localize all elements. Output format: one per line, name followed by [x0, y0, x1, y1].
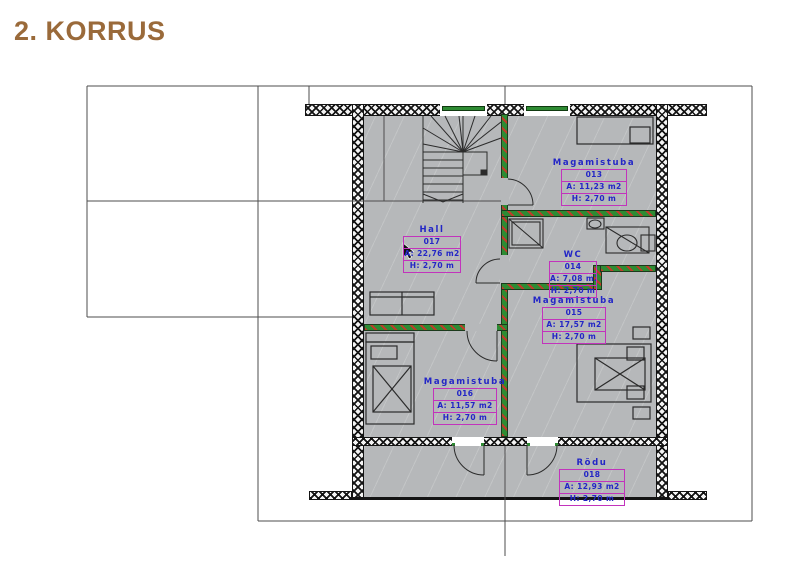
room-label-magamistuba-016: Magamistuba 016 A: 11,57 m2 H: 2,70 m — [410, 377, 520, 425]
room-label-magamistuba-013: Magamistuba 013 A: 11,23 m2 H: 2,70 m — [539, 158, 649, 206]
room-name: WC — [518, 250, 628, 260]
balcony-door-opening-right — [527, 437, 558, 446]
room-height: H: 2,70 m — [542, 331, 606, 344]
interior-wall-013-wc — [501, 210, 656, 217]
wall-stub-right — [668, 491, 707, 500]
page-title: 2. KORRUS — [14, 16, 166, 47]
window-glass-2 — [526, 106, 568, 111]
room-name: Hall — [377, 225, 487, 235]
room-label-magamistuba-015: Magamistuba 015 A: 17,57 m2 H: 2,70 m — [519, 296, 629, 344]
room-height: H: 2,70 m — [559, 493, 625, 506]
room-name: Magamistuba — [410, 377, 520, 387]
door-jamb — [452, 443, 455, 446]
room-height: H: 2,70 m — [433, 412, 497, 425]
wall-stub-left — [309, 491, 352, 500]
window-glass-1 — [442, 106, 485, 111]
door-jamb — [527, 443, 530, 446]
window-opening-1 — [440, 104, 487, 116]
wall-balcony-separation — [352, 437, 668, 446]
door-opening-016 — [465, 324, 497, 331]
room-name: Rõdu — [537, 458, 647, 468]
room-label-hall: Hall 017 A: 22,76 m2 H: 2,70 m — [377, 225, 487, 273]
room-name: Magamistuba — [539, 158, 649, 168]
room-label-rodu-018: Rõdu 018 A: 12,93 m2 H: 2,70 m — [537, 458, 647, 506]
balcony-door-opening-left — [452, 437, 484, 446]
window-opening-2 — [524, 104, 570, 116]
room-height: H: 2,70 m — [403, 260, 461, 273]
floor-plan-page: 2. KORRUS — [0, 0, 800, 569]
room-name: Magamistuba — [519, 296, 629, 306]
door-opening-wc — [500, 255, 509, 283]
door-jamb — [481, 443, 484, 446]
door-jamb — [555, 443, 558, 446]
door-opening-013 — [500, 178, 509, 205]
room-height: H: 2,70 m — [561, 193, 627, 206]
room-label-wc-014: WC 014 A: 7,08 m2 H: 2,70 m — [518, 250, 628, 298]
